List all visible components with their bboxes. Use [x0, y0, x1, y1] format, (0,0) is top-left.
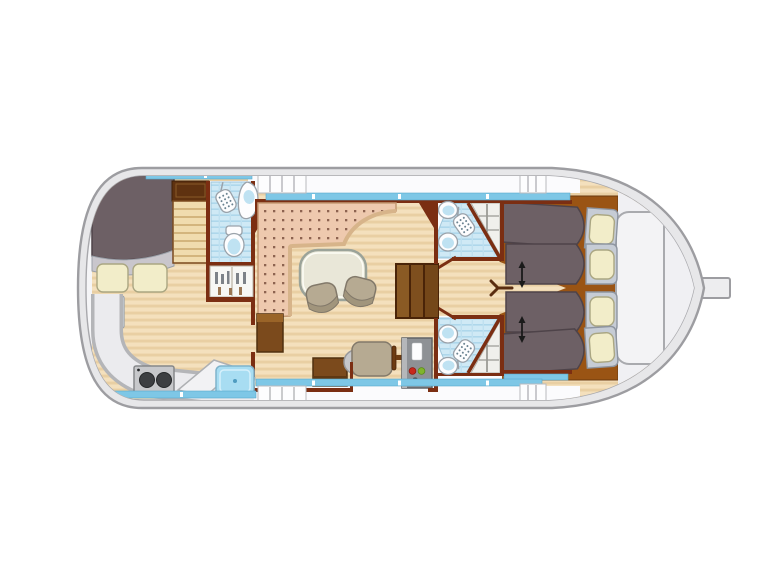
- companionway-steps: [173, 201, 209, 263]
- berth-1: [501, 202, 619, 250]
- aft-bathroom-bottom: [436, 308, 504, 380]
- floor-plan-canvas: ❄: [0, 0, 768, 576]
- pillow: [590, 297, 614, 326]
- pillow: [97, 264, 128, 292]
- boat-floor-plan: ❄: [0, 0, 768, 576]
- stern-seating-outline: [616, 212, 664, 364]
- green-button: [418, 368, 425, 375]
- helm-seat: [352, 342, 392, 376]
- steps-to-aft: [396, 264, 438, 318]
- steering-wheel: [392, 346, 396, 370]
- instrument-screen: [412, 343, 422, 360]
- pillow: [590, 250, 614, 279]
- pillow: [133, 264, 167, 292]
- deck-steps: [520, 173, 546, 193]
- door-jamb: [350, 362, 353, 392]
- aft-bathroom-top: [436, 196, 504, 268]
- pillow: [589, 214, 615, 245]
- berth-4: [501, 326, 619, 374]
- aft-top-wall: [502, 200, 572, 204]
- toilet: [224, 226, 244, 257]
- stove: [134, 366, 174, 394]
- bathroom-shelf: [210, 266, 253, 297]
- pillow: [589, 332, 615, 363]
- red-button: [409, 368, 416, 375]
- burner: [140, 373, 155, 388]
- aft-bottom-wall: [502, 370, 572, 374]
- top-window-strip: [266, 193, 570, 200]
- aft-cabin: [491, 174, 718, 402]
- burner: [157, 373, 172, 388]
